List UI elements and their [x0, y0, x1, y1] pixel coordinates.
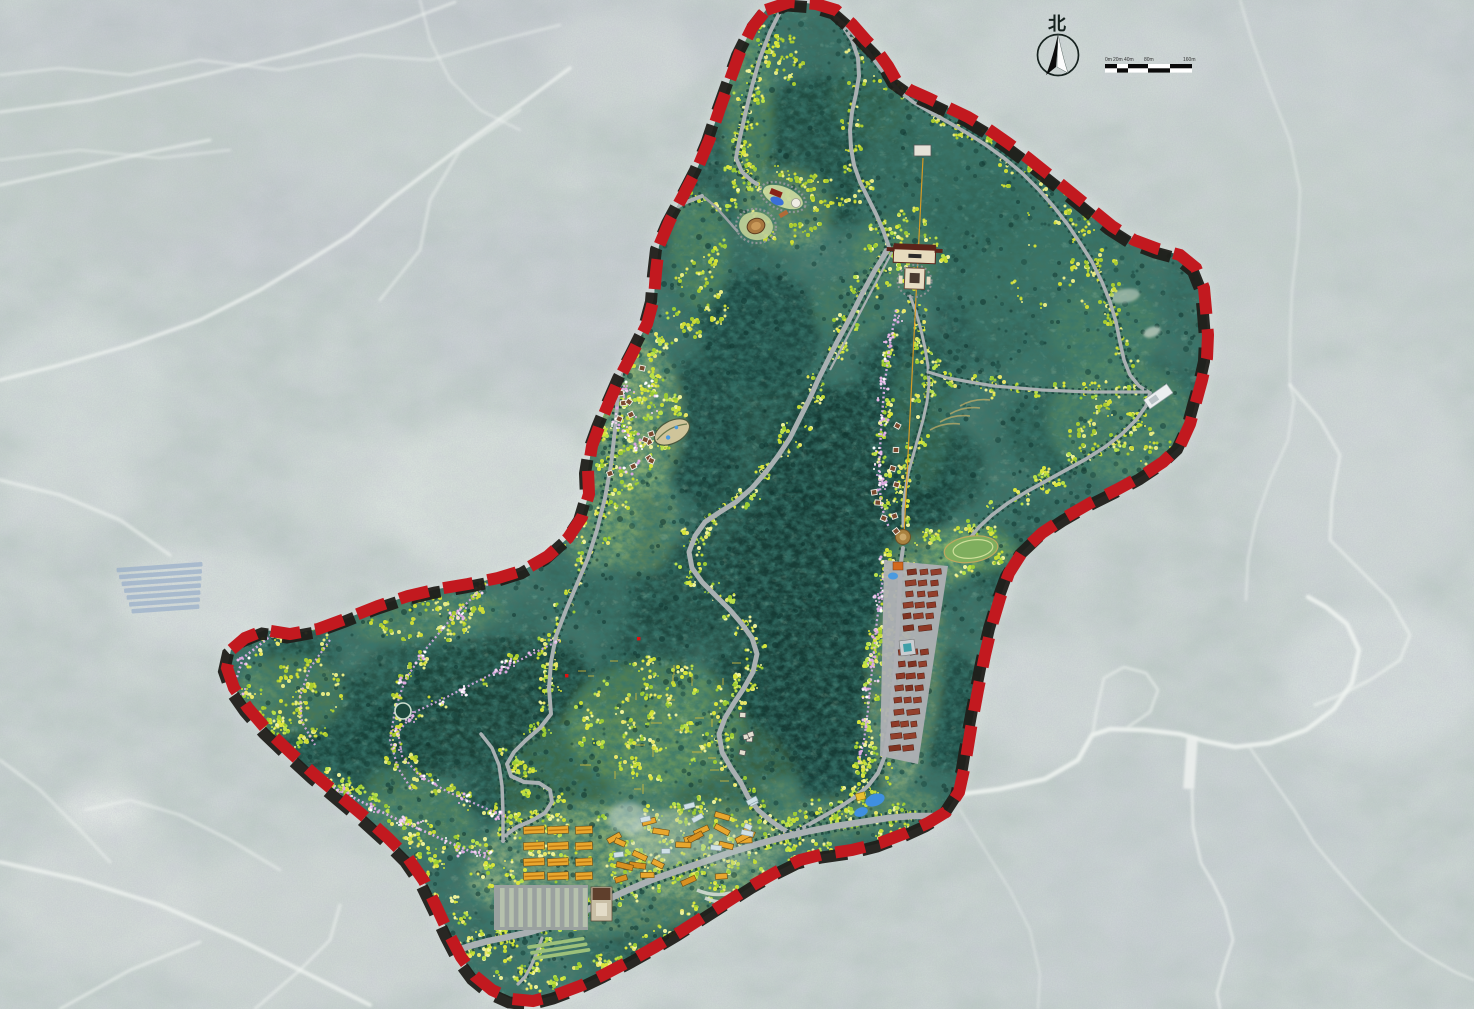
svg-text:0m: 0m	[1105, 57, 1112, 63]
svg-text:80m: 80m	[1144, 57, 1154, 63]
svg-text:20m: 20m	[1113, 57, 1123, 63]
svg-text:160m: 160m	[1183, 57, 1196, 63]
svg-text:40m: 40m	[1124, 57, 1134, 63]
svg-text:北: 北	[1048, 14, 1066, 34]
